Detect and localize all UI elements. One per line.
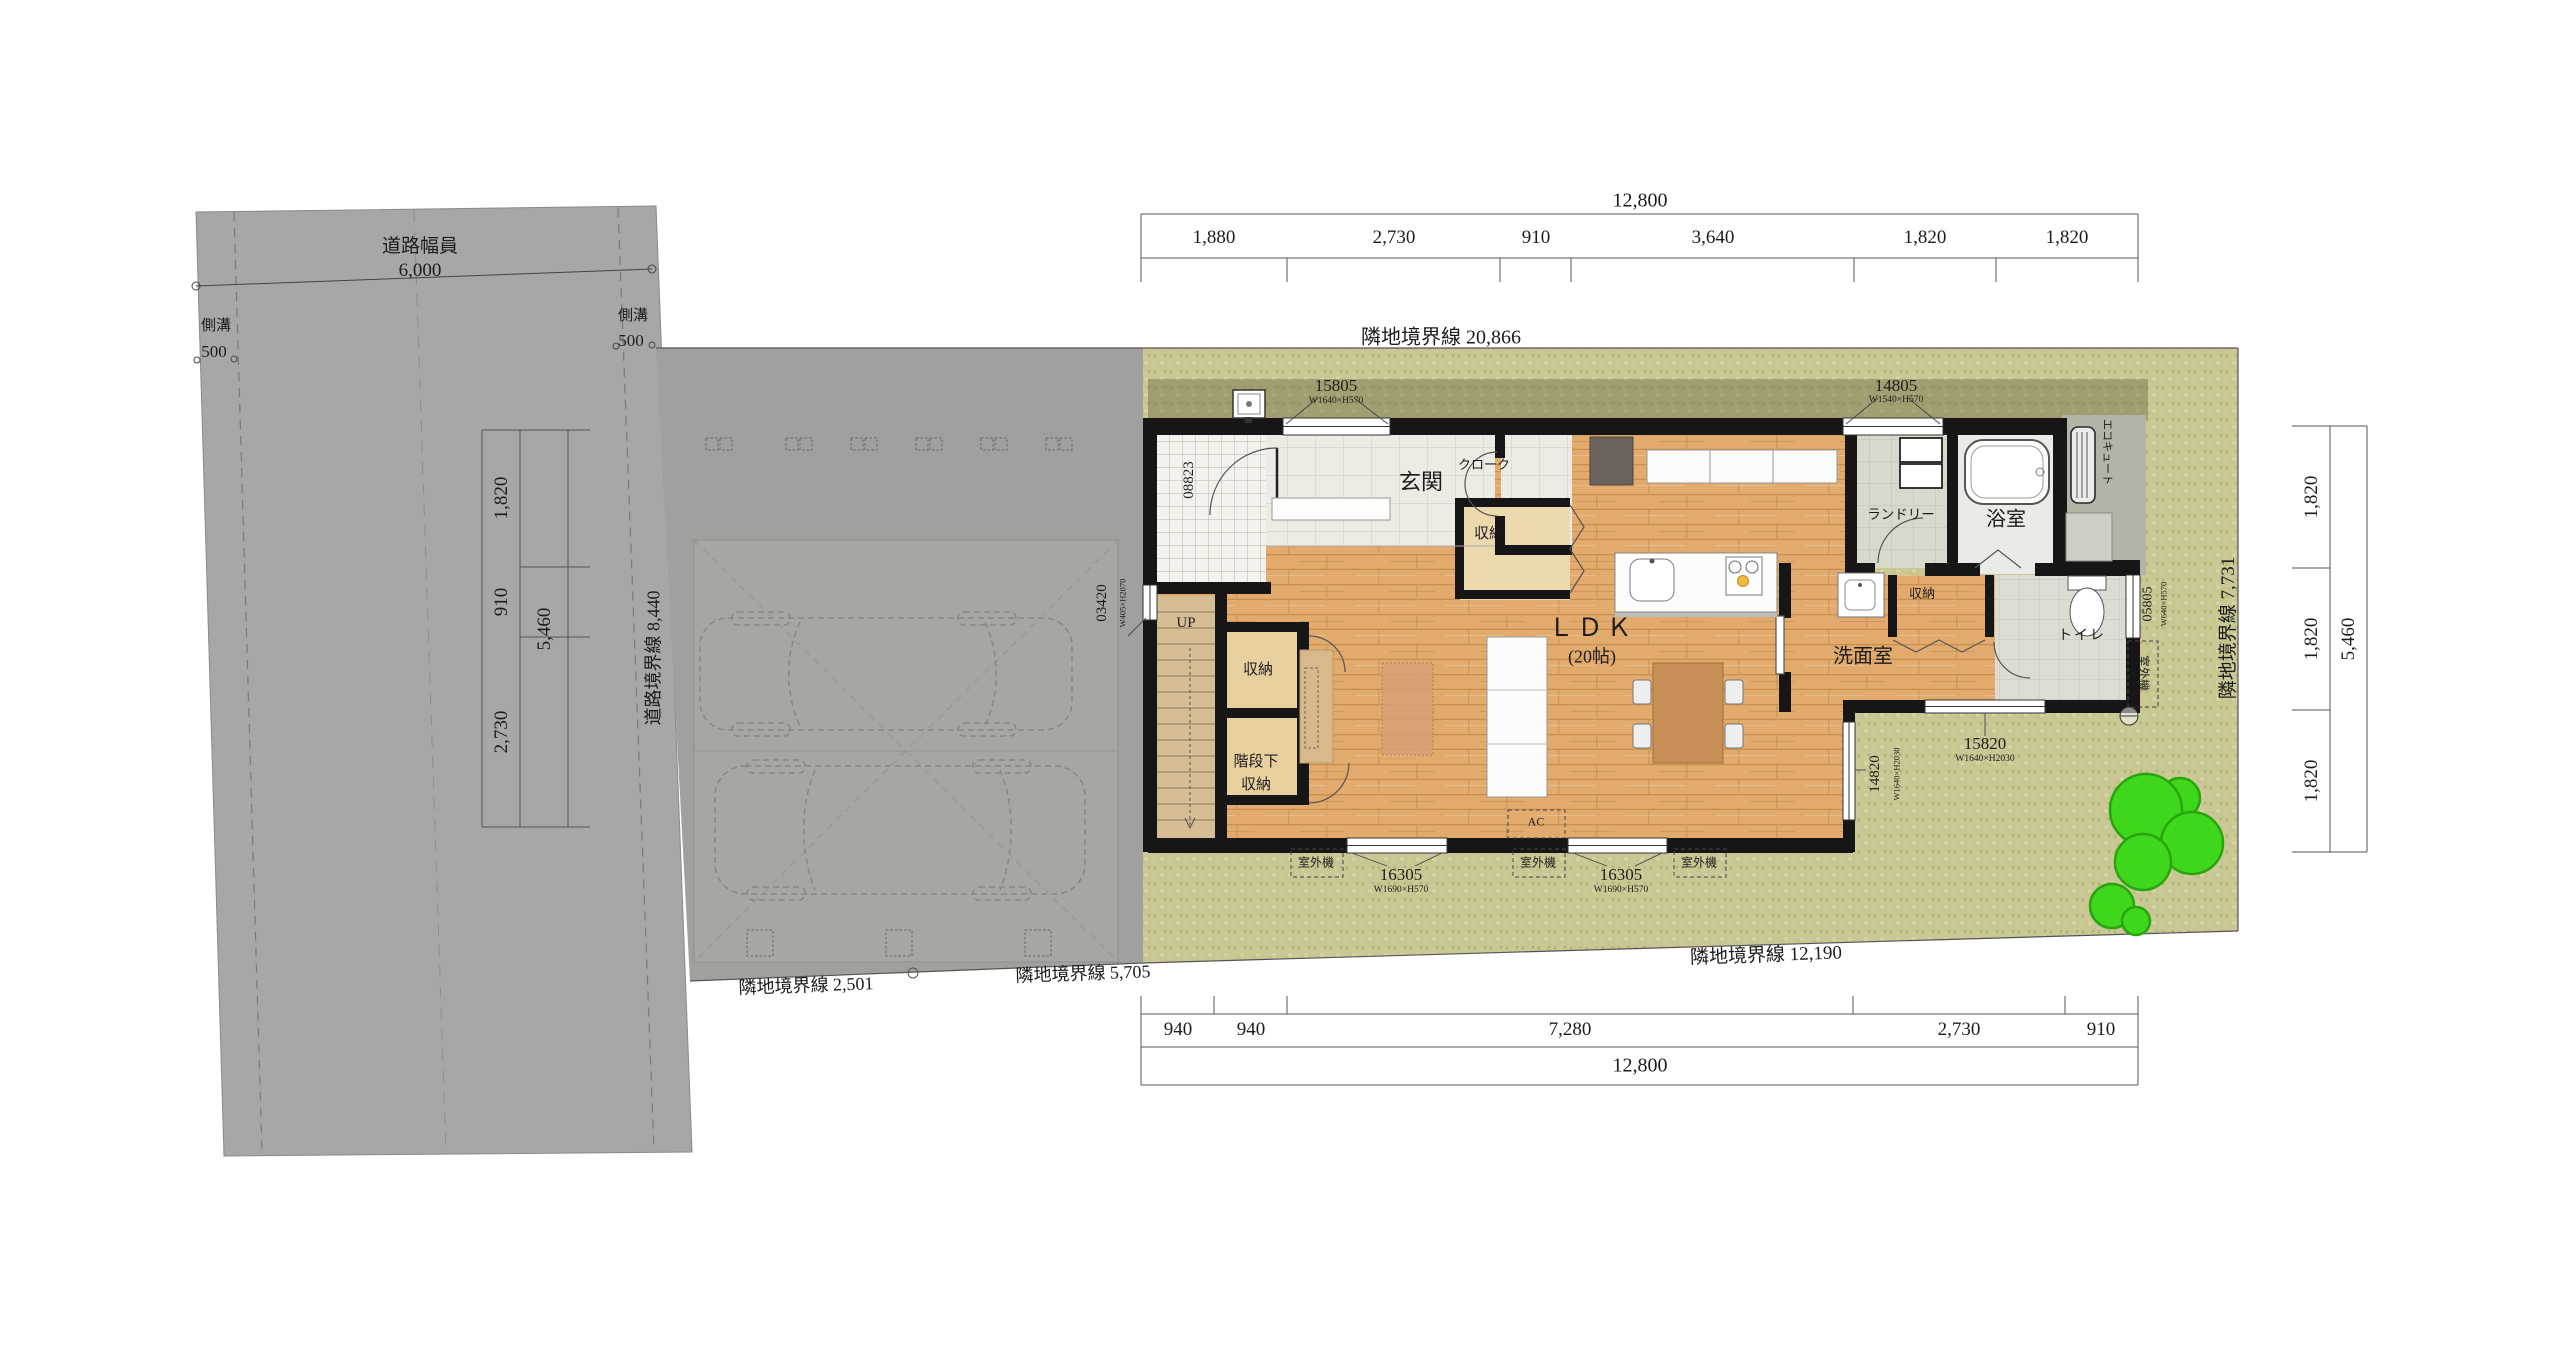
kitchen-island <box>1615 553 1777 617</box>
room-washroom: 洗面室 <box>1833 647 1893 668</box>
gutter-left-label: 側溝 <box>201 319 231 335</box>
dim-bottom-seg-1: 940 <box>1164 1020 1193 1040</box>
kitchen-cabinets <box>1647 450 1837 483</box>
window-15805 <box>1283 418 1390 435</box>
window-15820 <box>1925 700 2045 713</box>
road-area <box>192 206 692 1156</box>
dim-right-seg-3: 1,820 <box>2302 760 2322 803</box>
intercom-box <box>1233 390 1265 423</box>
dim-right-seg-1: 1,820 <box>2302 476 2322 519</box>
room-ldk-size: (20帖) <box>1568 648 1616 667</box>
window-16305-b <box>1568 838 1667 853</box>
gutter-left-value: 500 <box>201 343 227 361</box>
room-storage-washroom: 収納 <box>1909 587 1935 601</box>
dim-top-seg-4: 3,640 <box>1692 228 1735 248</box>
label-window-05805: 05805 <box>2142 587 2157 622</box>
room-storage-hall: 収納 <box>1474 527 1504 543</box>
label-ecocute: エコキュート <box>2100 419 2112 485</box>
road-boundary-label: 道路境界線 8,440 <box>645 591 664 726</box>
label-window-05805-size: W640×H570 <box>2160 582 2169 626</box>
stairs-floor <box>1157 596 1215 838</box>
room-toilet: トイレ <box>2058 630 2106 645</box>
label-window-16305-b: 16305 <box>1600 866 1643 884</box>
dim-top-seg-5: 1,820 <box>1904 228 1947 248</box>
room-storage-stairs: 収納 <box>1243 663 1273 679</box>
dim-top-seg-2: 2,730 <box>1373 228 1416 248</box>
label-window-16305-a-size: W1690×H570 <box>1374 886 1428 896</box>
room-under-stair-storage-1: 階段下 <box>1233 755 1278 771</box>
dim-top-total: 12,800 <box>1613 191 1668 212</box>
label-outdoor-unit-2: 室外機 <box>1520 857 1556 870</box>
label-window-14820: 14820 <box>1868 755 1884 793</box>
dim-top-seg-1: 1,880 <box>1193 228 1236 248</box>
kitchen-sink <box>1630 559 1674 601</box>
meter <box>2120 707 2138 725</box>
room-under-stair-storage-2: 収納 <box>1241 778 1271 794</box>
dim-left-seg-1: 1,820 <box>492 477 512 520</box>
porch-floor <box>1157 434 1266 582</box>
dim-bottom-seg-2: 940 <box>1237 1020 1266 1040</box>
label-window-15805-size: W1640×H570 <box>1309 397 1363 407</box>
label-window-03420: 03420 <box>1095 584 1111 622</box>
label-window-15820: 15820 <box>1964 735 2007 753</box>
room-entrance: 玄関 <box>1399 470 1443 493</box>
dim-right-total: 5,460 <box>2339 618 2359 661</box>
window-14820 <box>1843 722 1855 820</box>
label-door-08823: 08823 <box>1182 461 1198 499</box>
dim-top-seg-6: 1,820 <box>2046 228 2089 248</box>
label-window-16305-b-size: W1690×H570 <box>1594 886 1648 896</box>
label-window-14805: 14805 <box>1875 377 1918 395</box>
dim-bottom-total: 12,800 <box>1613 1056 1668 1077</box>
bathtub <box>1965 440 2049 504</box>
parking-area <box>656 348 1143 981</box>
window-14805 <box>1843 418 1943 435</box>
label-outdoor-unit-1: 室外機 <box>1298 857 1334 870</box>
gutter-right-label: 側溝 <box>618 309 648 325</box>
dim-left-total: 5,460 <box>535 608 555 651</box>
washbasin <box>1838 573 1884 617</box>
dim-bottom-seg-3: 7,280 <box>1549 1020 1592 1040</box>
toilet <box>2068 576 2106 636</box>
plan-canvas <box>0 0 2560 1348</box>
label-ac: AC <box>1528 816 1545 829</box>
shoe-cabinet <box>1272 498 1390 520</box>
dim-bottom-seg-5: 910 <box>2087 1020 2116 1040</box>
gutter-right-value: 500 <box>618 332 644 350</box>
rug <box>1382 663 1433 755</box>
dim-right-seg-2: 1,820 <box>2302 618 2322 661</box>
room-laundry: ランドリー <box>1867 508 1935 522</box>
refrigerator <box>1590 437 1633 485</box>
road-width-value: 6,000 <box>399 261 442 281</box>
label-window-14805-size: W1540×H570 <box>1869 396 1923 406</box>
room-bathroom: 浴室 <box>1986 510 2026 531</box>
stairs-up-label: UP <box>1176 616 1195 632</box>
sofa <box>1487 637 1547 797</box>
boundary-north-label: 隣地境界線 20,866 <box>1361 328 1521 349</box>
window-03420 <box>1143 585 1157 620</box>
site-plan: 12,800 1,880 2,730 910 3,640 1,820 1,820… <box>0 0 2560 1348</box>
dim-bottom-seg-4: 2,730 <box>1938 1020 1981 1040</box>
window-16305-a <box>1347 838 1447 853</box>
label-window-03420-size: W405×H2070 <box>1119 579 1128 628</box>
washroom-sliding-door <box>1776 616 1784 674</box>
label-window-14820-size: W1640×H2030 <box>1893 748 1902 801</box>
label-outdoor-unit-4: 室外機 <box>2137 655 2150 691</box>
road-width-label: 道路幅員 <box>382 237 458 257</box>
dim-top-seg-3: 910 <box>1522 228 1551 248</box>
room-ldk: ＬＤＫ <box>1548 616 1635 642</box>
label-window-15805: 15805 <box>1315 377 1358 395</box>
label-outdoor-unit-3: 室外機 <box>1681 857 1717 870</box>
dim-left-seg-3: 2,730 <box>492 711 512 754</box>
dim-left-seg-2: 910 <box>492 588 512 617</box>
tv-board <box>1300 650 1333 763</box>
label-window-16305-a: 16305 <box>1380 866 1423 884</box>
window-05805 <box>2126 575 2140 638</box>
boundary-east-label: 隣地境界線 7,731 <box>2219 557 2239 700</box>
label-window-15820-size: W1640×H2030 <box>1955 755 2014 765</box>
room-cloak: クローク <box>1458 458 1510 472</box>
